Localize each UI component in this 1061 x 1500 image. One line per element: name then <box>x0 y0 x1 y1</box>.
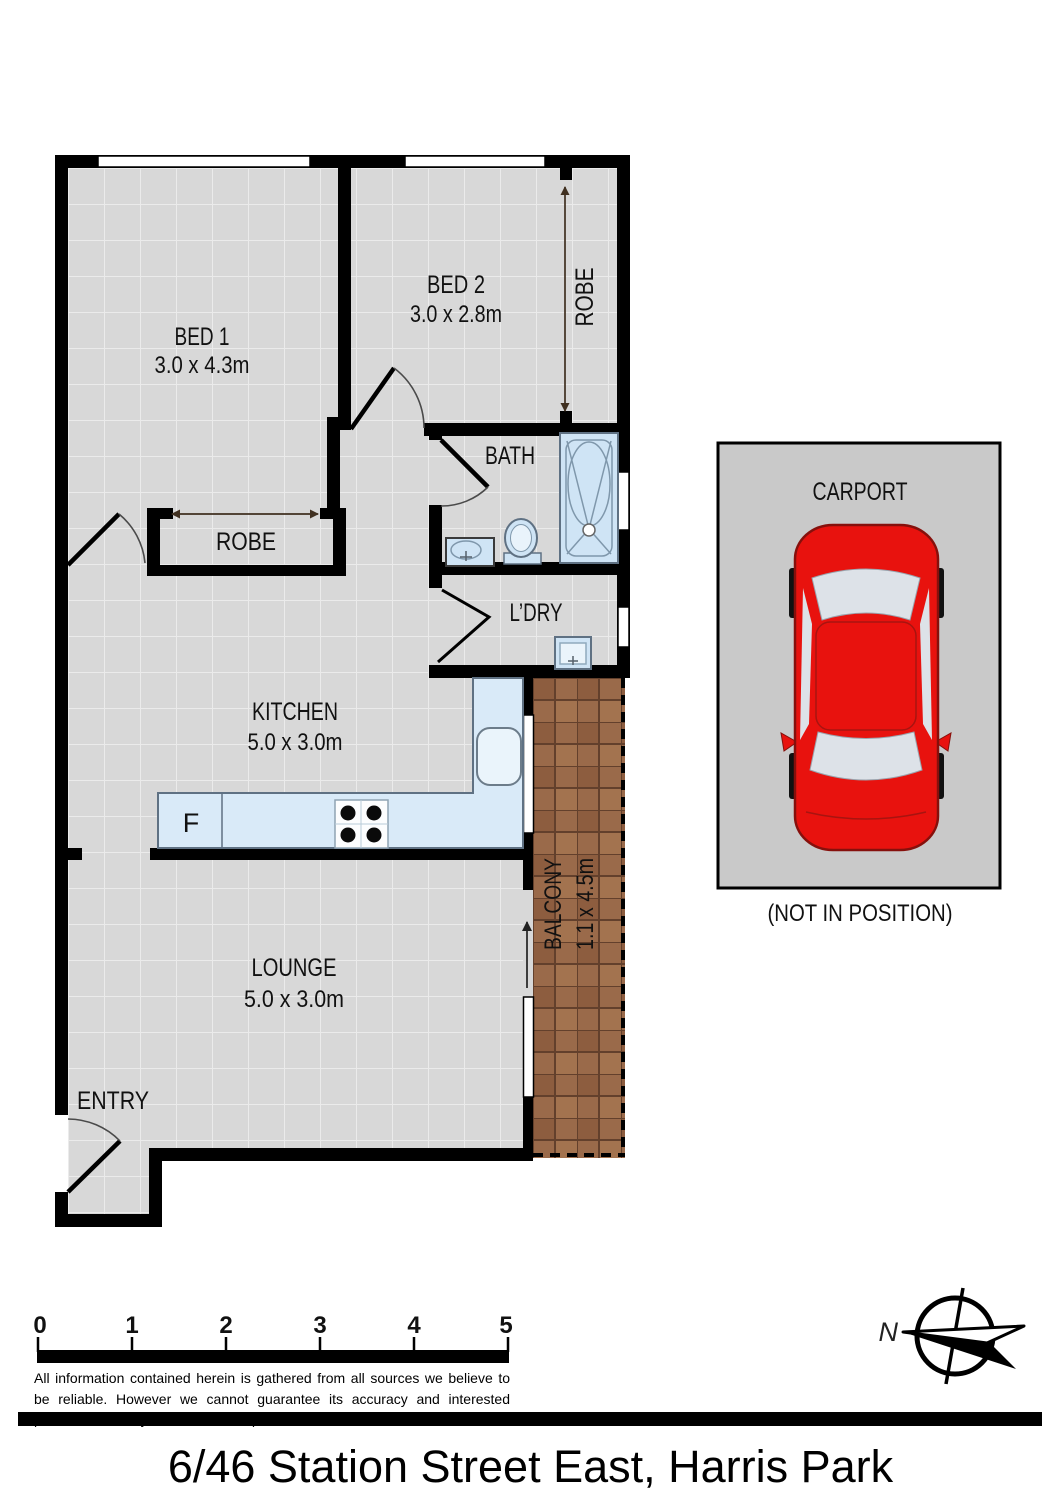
vanity-sink-icon <box>446 538 494 566</box>
balcony-opening <box>523 890 533 997</box>
bed1-label: BED 1 <box>175 323 230 351</box>
balcony-door-window <box>524 997 534 1097</box>
car-icon <box>781 525 951 850</box>
kitchen-sink-icon <box>477 728 521 785</box>
bed1-dims: 3.0 x 4.3m <box>155 352 250 379</box>
floorplan-page: BED 1 3.0 x 4.3m BED 2 3.0 x 2.8m ROBE B… <box>0 0 1061 1500</box>
window-bed1 <box>98 156 310 167</box>
address-title: 6/46 Station Street East, Harris Park <box>0 1441 1061 1493</box>
entry-door-opening <box>55 1115 68 1192</box>
carport-note: (NOT IN POSITION) <box>768 900 953 927</box>
scale-tick-1: 1 <box>125 1312 138 1339</box>
kitchen-dims: 5.0 x 3.0m <box>248 729 343 756</box>
scale-tick-2: 2 <box>219 1312 232 1339</box>
laundry-tub-icon <box>555 637 591 669</box>
compass-icon: N <box>879 1288 1025 1384</box>
bed2-robe-label: ROBE <box>571 268 599 327</box>
floorplan-canvas: BED 1 3.0 x 4.3m BED 2 3.0 x 2.8m ROBE B… <box>0 0 1061 1500</box>
balcony-label: BALCONY <box>540 858 567 950</box>
window-bed2 <box>405 156 545 167</box>
bed1-robe-label: ROBE <box>216 528 276 556</box>
bed2-dims: 3.0 x 2.8m <box>410 301 502 328</box>
scale-tick-3: 3 <box>313 1312 326 1339</box>
carport-label: CARPORT <box>813 478 908 506</box>
lounge-dims: 5.0 x 3.0m <box>244 986 344 1013</box>
bath-label: BATH <box>485 442 535 470</box>
balcony-dims: 1.1 x 4.5m <box>572 858 599 950</box>
bed2-label: BED 2 <box>427 271 485 299</box>
laundry-label: L’DRY <box>510 599 563 627</box>
window-kitchen <box>524 715 534 833</box>
scale-tick-4: 4 <box>407 1312 421 1339</box>
lounge-label: LOUNGE <box>252 954 337 982</box>
window-bath <box>618 472 629 530</box>
window-laundry <box>618 607 629 647</box>
north-label: N <box>879 1317 899 1347</box>
fridge-label: F <box>183 808 200 838</box>
disclaimer-text: All information contained herein is gath… <box>34 1368 510 1430</box>
scale-tick-0: 0 <box>33 1312 46 1339</box>
entry-label: ENTRY <box>77 1087 149 1115</box>
scale-bar-rule <box>37 1350 509 1363</box>
kitchen-label: KITCHEN <box>252 698 338 726</box>
scale-bar: 0 1 2 3 4 5 <box>33 1312 512 1363</box>
scale-tick-5: 5 <box>499 1312 512 1339</box>
carport: CARPORT (NOT IN POSITION) <box>718 443 1000 927</box>
bathtub-icon <box>560 433 618 563</box>
